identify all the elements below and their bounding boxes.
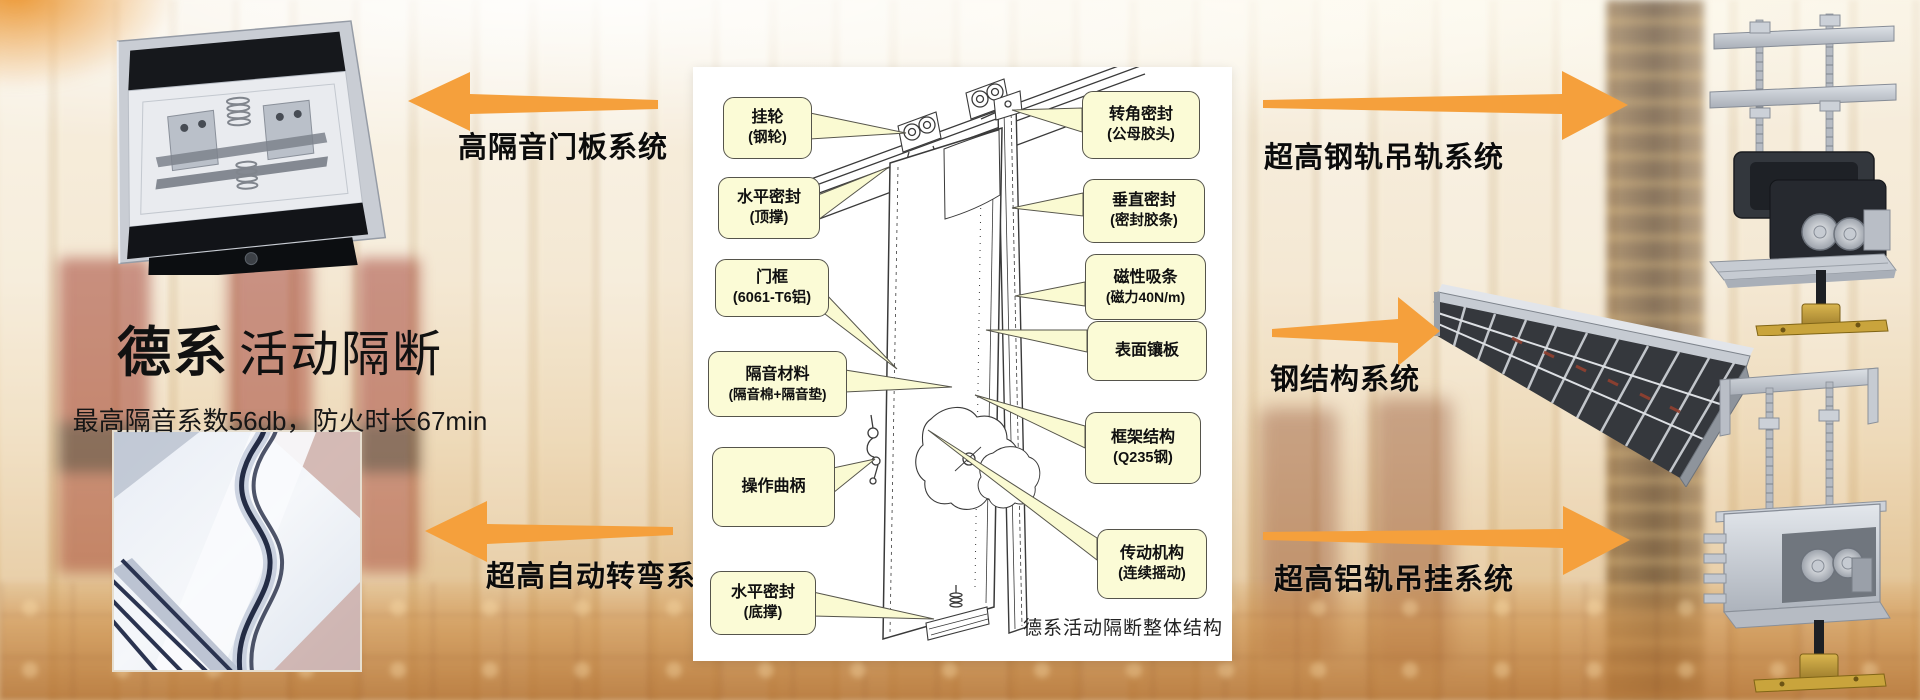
callout-title: 门框 (756, 268, 788, 289)
callout-sub: (连续摇动) (1118, 565, 1186, 584)
callout-bottom-seal: 水平密封 (底撑) (710, 571, 816, 635)
callout-hanging-wheel: 挂轮 (钢轮) (723, 97, 812, 159)
callout-top-seal: 水平密封 (顶撑) (718, 177, 820, 239)
label-steel-rail-system: 超高钢轨吊轨系统 (1264, 134, 1504, 176)
callout-title: 磁性吸条 (1113, 268, 1177, 289)
callout-operating-crank: 操作曲柄 (712, 447, 835, 527)
callout-vertical-seal: 垂直密封 (密封胶条) (1083, 179, 1205, 243)
label-door-panel-system: 高隔音门板系统 (458, 124, 668, 166)
callout-title: 表面镶板 (1115, 341, 1179, 362)
photo-curved-track (112, 430, 362, 672)
callout-sub: (底撑) (744, 604, 783, 623)
photo-door-panel-mechanism (85, 5, 395, 275)
callout-sub: (顶撑) (750, 209, 789, 228)
callout-title: 垂直密封 (1112, 191, 1176, 212)
callout-transmission: 传动机构 (连续摇动) (1097, 529, 1207, 599)
callout-title: 操作曲柄 (741, 477, 805, 498)
product-title-block: 德系活动隔断 最高隔音系数56db，防火时长67min (60, 308, 500, 438)
callout-sub: (磁力40N/m) (1106, 288, 1185, 306)
callout-sub: (6061-T6铝) (733, 289, 811, 308)
product-name: 活动隔断 (239, 328, 443, 382)
callout-door-frame: 门框 (6061-T6铝) (715, 259, 829, 317)
alu-rail-hanger-illustration (1694, 362, 1908, 696)
callout-sub: (公母胶头) (1107, 126, 1175, 145)
callout-sound-insulation: 隔音材料 (隔音棉+隔音垫) (708, 351, 847, 417)
product-subtitle: 最高隔音系数56db，防火时长67min (60, 401, 500, 438)
photo-alu-rail-hanger (1694, 362, 1908, 696)
callout-title: 传动机构 (1120, 544, 1184, 565)
callout-sub: (钢轮) (748, 129, 787, 148)
label-alu-rail-system: 超高铝轨吊挂系统 (1274, 556, 1514, 598)
structure-diagram-panel: 挂轮 (钢轮) 水平密封 (顶撑) 门框 (6061-T6铝) 隔音材料 (隔音… (693, 67, 1232, 661)
label-auto-turning-system: 超高自动转弯系统 (486, 553, 726, 595)
callout-title: 隔音材料 (745, 365, 809, 386)
callout-sub: (Q235钢) (1113, 449, 1173, 468)
callout-sub: (隔音棉+隔音垫) (729, 386, 827, 404)
callout-title: 框架结构 (1111, 428, 1175, 449)
callout-surface-panel: 表面镶板 (1087, 321, 1207, 381)
callout-title: 挂轮 (751, 108, 783, 129)
door-panel-photo-illustration (85, 5, 395, 275)
diagram-caption: 德系活动隔断整体结构 (1023, 613, 1228, 640)
callout-title: 水平密封 (731, 583, 795, 604)
callout-title: 转角密封 (1109, 105, 1173, 126)
brand-name: 德系 (117, 323, 229, 383)
callout-title: 水平密封 (737, 188, 801, 209)
callout-sub: (密封胶条) (1110, 212, 1178, 231)
callout-corner-seal: 转角密封 (公母胶头) (1082, 91, 1200, 159)
label-steel-structure-system: 钢结构系统 (1270, 356, 1420, 398)
callout-magnetic-strip: 磁性吸条 (磁力40N/m) (1085, 254, 1206, 320)
page-title: 德系活动隔断 (60, 308, 500, 387)
infographic-slide: 高隔音门板系统 超高自动转弯系统 超高钢轨吊轨系统 钢结构系统 超高铝轨吊挂系统… (0, 0, 1920, 700)
callout-frame-structure: 框架结构 (Q235钢) (1085, 412, 1201, 484)
curved-track-photo-illustration (112, 430, 362, 672)
